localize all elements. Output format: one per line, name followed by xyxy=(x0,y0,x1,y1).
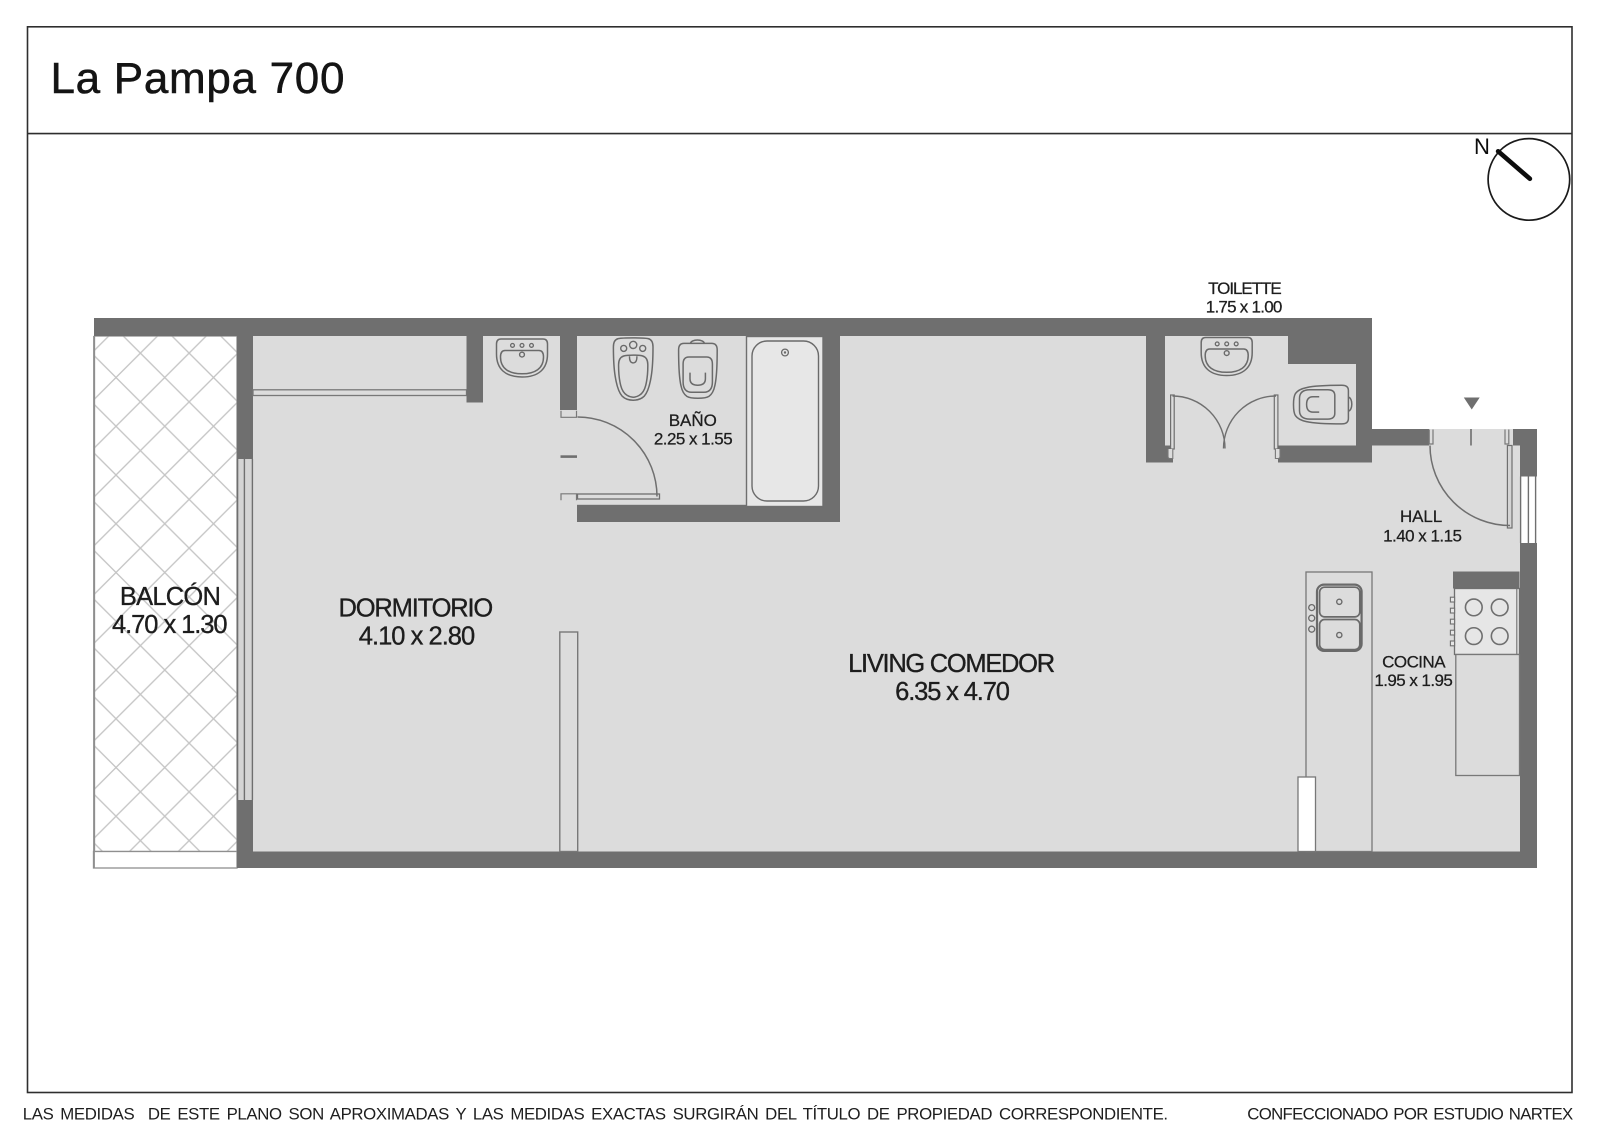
svg-text:COCINA: COCINA xyxy=(1382,653,1446,672)
svg-text:CONFECCIONADO POR ESTUDIO NART: CONFECCIONADO POR ESTUDIO NARTEX xyxy=(1247,1105,1573,1124)
svg-text:BAÑO: BAÑO xyxy=(669,411,717,430)
svg-text:2.25 x 1.55: 2.25 x 1.55 xyxy=(654,430,732,449)
svg-text:DORMITORIO: DORMITORIO xyxy=(339,595,493,623)
svg-text:1.40 x 1.15: 1.40 x 1.15 xyxy=(1383,527,1461,546)
svg-text:LAS MEDIDAS DE ESTE PLANO SON: LAS MEDIDAS DE ESTE PLANO SON APROXIMADA… xyxy=(23,1105,1168,1124)
svg-text:La Pampa 700: La Pampa 700 xyxy=(51,54,346,103)
svg-text:N: N xyxy=(1474,134,1490,159)
svg-text:TOILETTE: TOILETTE xyxy=(1208,279,1281,298)
svg-text:4.70 x 1.30: 4.70 x 1.30 xyxy=(112,611,227,639)
svg-text:BALCÓN: BALCÓN xyxy=(120,582,220,611)
svg-text:4.10 x 2.80: 4.10 x 2.80 xyxy=(359,623,475,651)
svg-text:6.35 x 4.70: 6.35 x 4.70 xyxy=(895,678,1010,706)
svg-text:LIVING COMEDOR: LIVING COMEDOR xyxy=(848,650,1055,678)
svg-text:HALL: HALL xyxy=(1400,507,1442,526)
svg-text:1.75 x 1.00: 1.75 x 1.00 xyxy=(1206,298,1282,317)
svg-text:1.95 x 1.95: 1.95 x 1.95 xyxy=(1374,671,1452,690)
